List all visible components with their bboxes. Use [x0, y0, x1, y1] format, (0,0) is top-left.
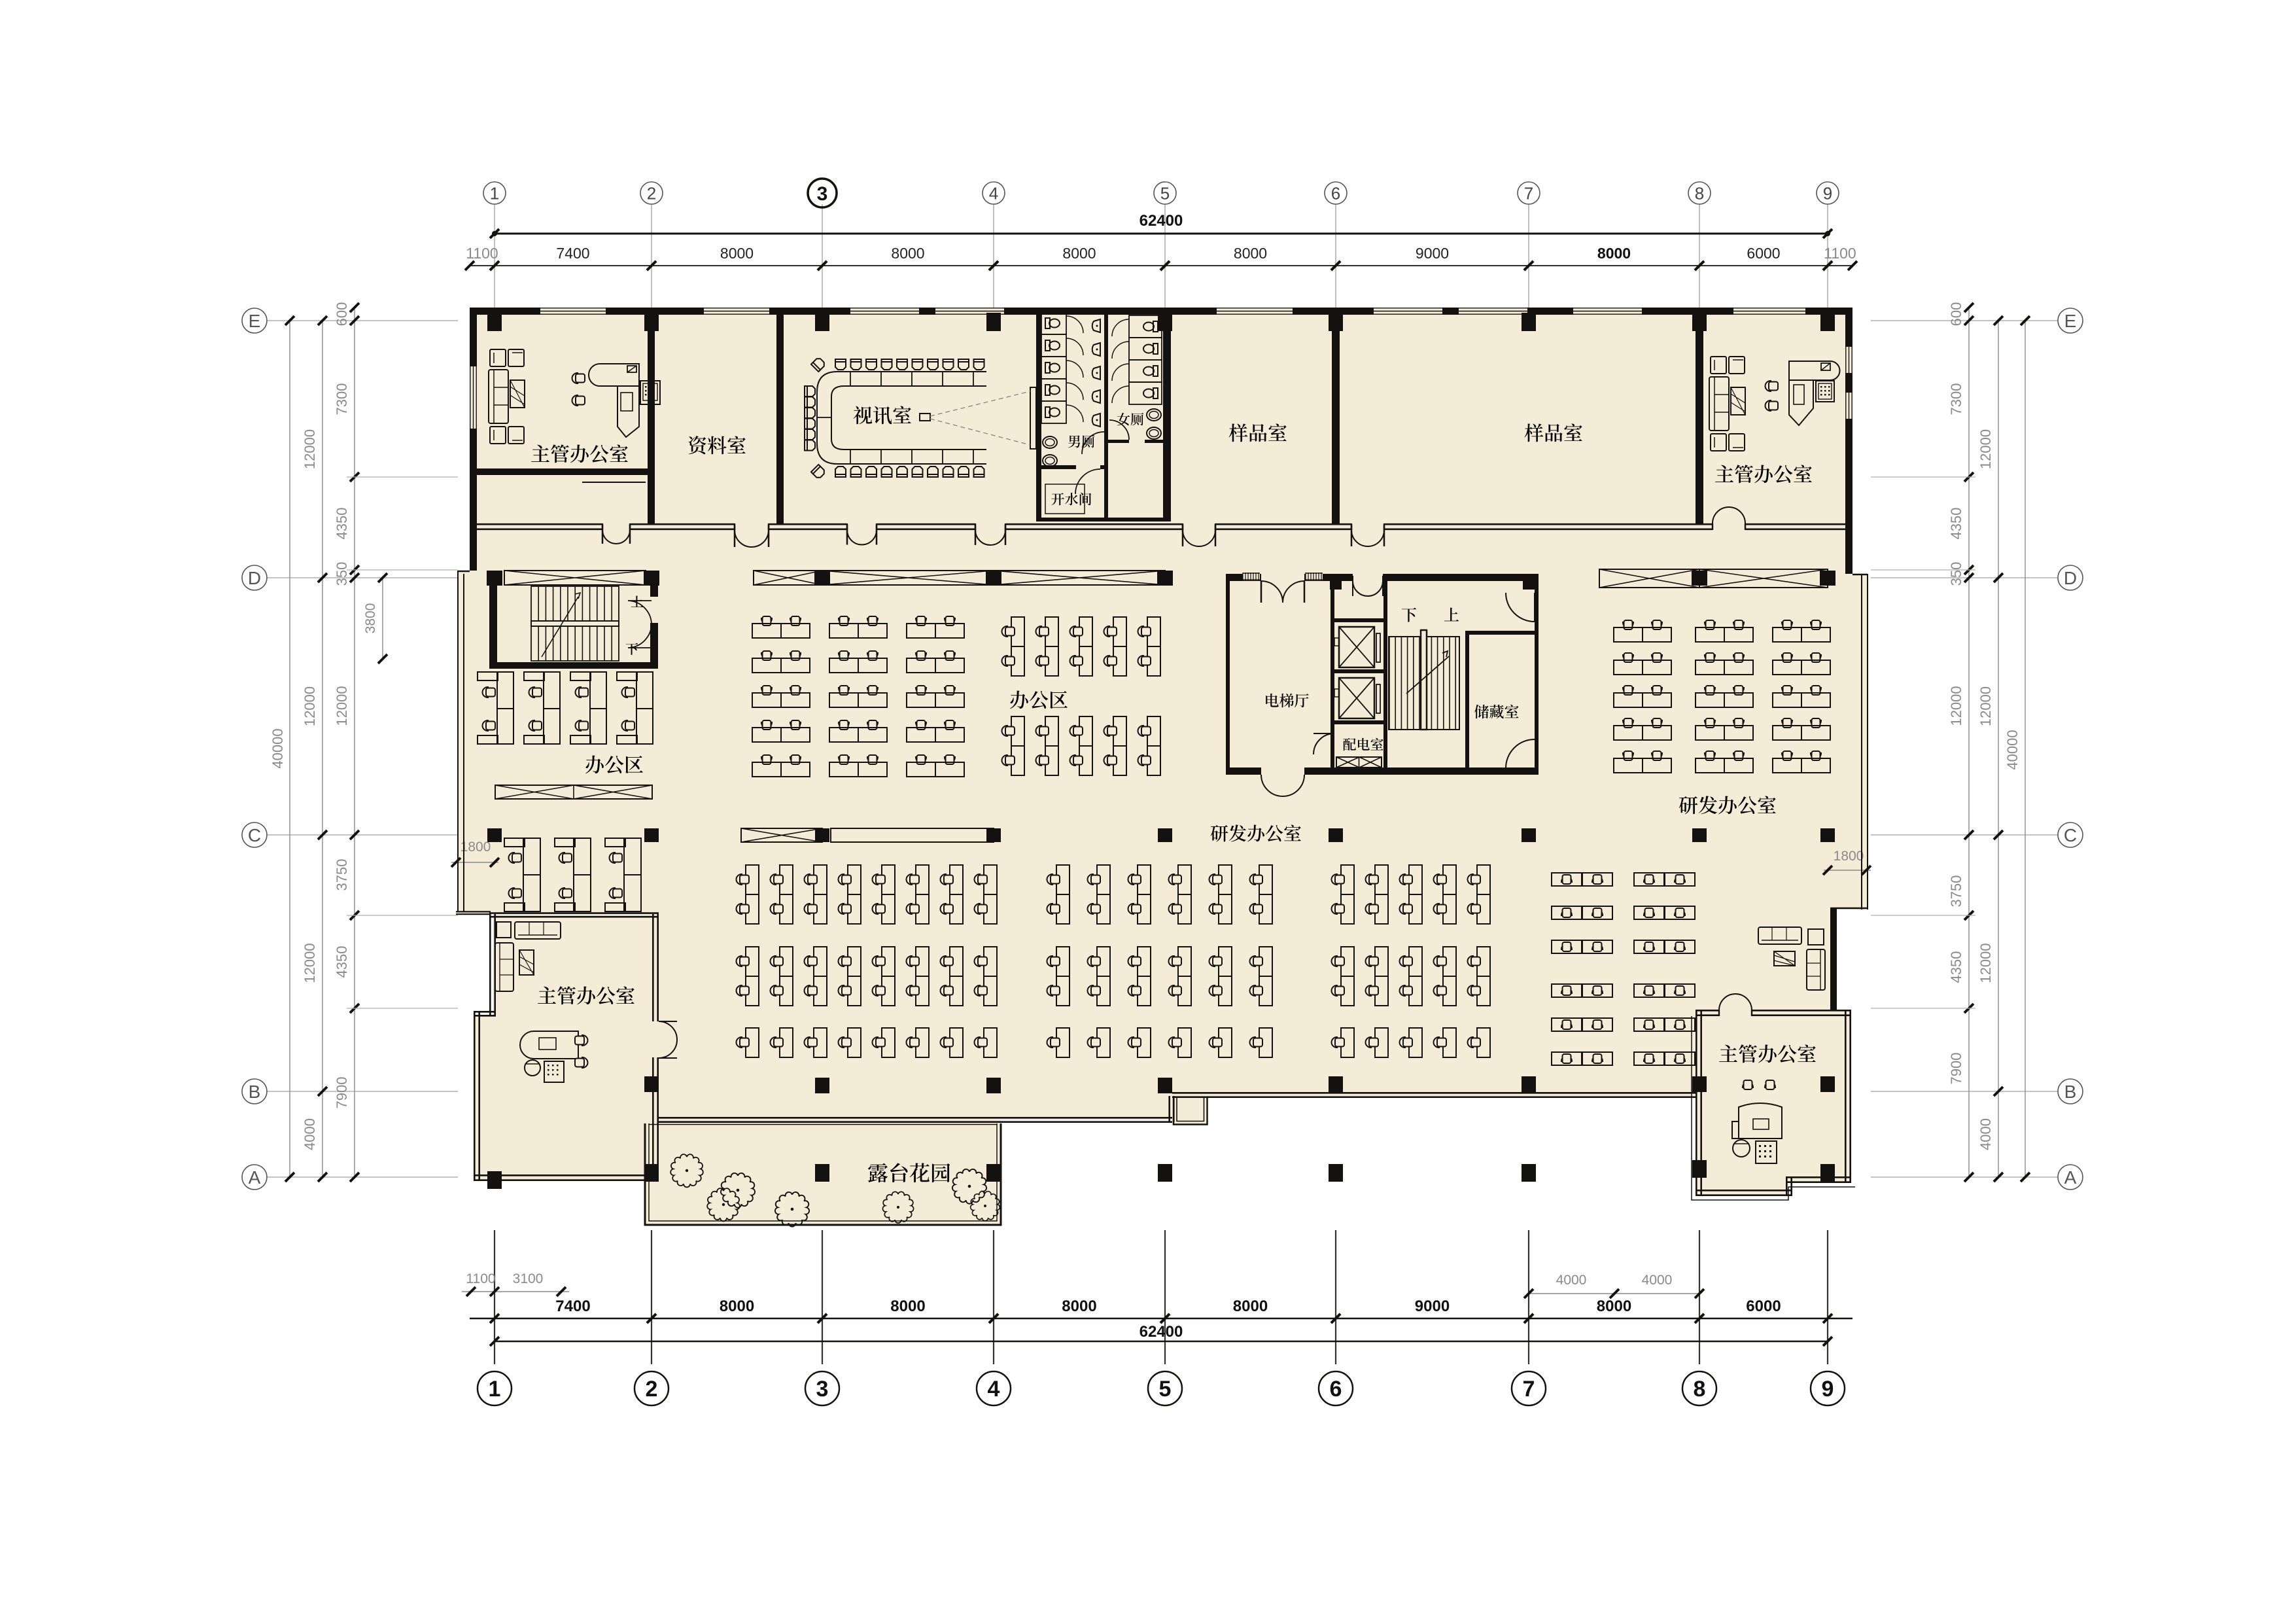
svg-text:8000: 8000: [891, 245, 924, 262]
svg-text:E: E: [249, 311, 261, 331]
svg-text:8000: 8000: [1597, 1297, 1631, 1315]
svg-text:4000: 4000: [1556, 1273, 1587, 1288]
svg-text:2: 2: [646, 1377, 658, 1402]
svg-text:B: B: [2064, 1082, 2077, 1102]
svg-text:C: C: [248, 825, 261, 845]
svg-text:4: 4: [988, 1377, 1000, 1402]
svg-text:62400: 62400: [1139, 212, 1183, 230]
svg-text:2: 2: [647, 183, 656, 203]
svg-text:1100: 1100: [466, 1271, 495, 1286]
svg-text:C: C: [2064, 825, 2077, 845]
svg-text:7400: 7400: [556, 245, 589, 262]
svg-text:1: 1: [489, 1377, 501, 1402]
svg-text:5: 5: [1160, 183, 1170, 203]
svg-text:12000: 12000: [302, 429, 318, 469]
svg-text:5: 5: [1159, 1377, 1172, 1402]
svg-text:350: 350: [1948, 562, 1964, 586]
svg-text:3: 3: [816, 1377, 829, 1402]
svg-text:7900: 7900: [334, 1077, 350, 1109]
svg-text:4350: 4350: [334, 946, 350, 978]
svg-text:9: 9: [1823, 183, 1832, 203]
svg-text:D: D: [248, 568, 261, 588]
svg-text:8: 8: [1694, 1377, 1706, 1402]
svg-text:4350: 4350: [1948, 951, 1964, 983]
svg-text:40000: 40000: [2004, 730, 2021, 769]
svg-text:40000: 40000: [270, 728, 286, 768]
svg-text:7300: 7300: [1948, 383, 1964, 415]
svg-text:7300: 7300: [334, 383, 350, 415]
svg-text:3100: 3100: [513, 1271, 544, 1286]
svg-text:600: 600: [334, 302, 350, 327]
svg-text:4350: 4350: [1948, 508, 1964, 540]
svg-text:62400: 62400: [1139, 1323, 1183, 1341]
svg-text:9000: 9000: [1415, 1297, 1450, 1315]
svg-text:8000: 8000: [720, 1297, 754, 1315]
svg-text:12000: 12000: [302, 686, 318, 726]
svg-text:1800: 1800: [1834, 849, 1864, 864]
svg-text:7: 7: [1523, 1377, 1535, 1402]
svg-text:8000: 8000: [720, 245, 754, 262]
svg-text:B: B: [249, 1082, 261, 1102]
svg-text:350: 350: [334, 562, 350, 586]
svg-text:D: D: [2064, 568, 2077, 588]
svg-text:8000: 8000: [1234, 245, 1267, 262]
svg-text:12000: 12000: [334, 686, 350, 726]
svg-text:7400: 7400: [555, 1297, 590, 1315]
svg-text:4000: 4000: [302, 1118, 318, 1150]
svg-text:A: A: [249, 1167, 261, 1188]
svg-text:4000: 4000: [1977, 1118, 1994, 1150]
svg-text:1100: 1100: [1824, 245, 1856, 262]
svg-text:6000: 6000: [1747, 245, 1780, 262]
svg-text:3750: 3750: [1948, 875, 1964, 908]
svg-text:8000: 8000: [1062, 1297, 1096, 1315]
svg-text:7900: 7900: [1948, 1053, 1964, 1085]
svg-text:3800: 3800: [363, 603, 378, 634]
svg-text:600: 600: [1948, 302, 1964, 327]
svg-text:8000: 8000: [1597, 245, 1631, 262]
svg-text:9: 9: [1822, 1377, 1834, 1402]
svg-text:A: A: [2064, 1167, 2077, 1188]
svg-text:3: 3: [817, 183, 828, 205]
svg-text:12000: 12000: [302, 943, 318, 983]
svg-text:6: 6: [1331, 183, 1340, 203]
svg-text:4: 4: [989, 183, 998, 203]
svg-text:3750: 3750: [334, 859, 350, 891]
svg-text:6: 6: [1330, 1377, 1342, 1402]
svg-text:12000: 12000: [1977, 943, 1994, 983]
svg-text:1100: 1100: [466, 245, 498, 262]
svg-text:6000: 6000: [1746, 1297, 1781, 1315]
svg-text:12000: 12000: [1977, 429, 1994, 469]
svg-text:1800: 1800: [461, 839, 491, 855]
svg-text:8000: 8000: [1062, 245, 1096, 262]
svg-text:7: 7: [1524, 183, 1533, 203]
svg-text:12000: 12000: [1977, 686, 1994, 726]
svg-text:8000: 8000: [890, 1297, 925, 1315]
svg-text:1: 1: [490, 183, 499, 203]
svg-text:E: E: [2064, 311, 2077, 331]
svg-text:4350: 4350: [334, 508, 350, 540]
svg-text:9000: 9000: [1416, 245, 1449, 262]
svg-text:8000: 8000: [1233, 1297, 1268, 1315]
svg-text:12000: 12000: [1948, 686, 1964, 726]
svg-text:8: 8: [1695, 183, 1704, 203]
svg-text:4000: 4000: [1642, 1273, 1673, 1288]
